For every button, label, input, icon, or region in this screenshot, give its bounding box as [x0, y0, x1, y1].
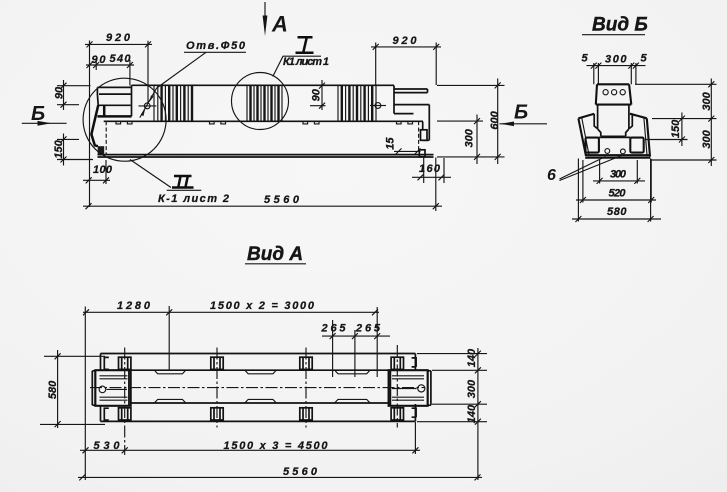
svg-text:150: 150: [670, 119, 682, 138]
svg-text:300: 300: [605, 53, 627, 65]
svg-text:520: 520: [609, 187, 627, 199]
svg-text:Вид Б: Вид Б: [592, 15, 648, 36]
svg-text:300: 300: [701, 91, 713, 110]
svg-text:Б: Б: [514, 102, 528, 124]
svg-text:300: 300: [466, 379, 478, 398]
svg-text:300: 300: [464, 128, 476, 147]
svg-text:5: 5: [641, 53, 648, 65]
svg-text:1500 х 2 = 3000: 1500 х 2 = 3000: [210, 300, 315, 312]
svg-text:К1 лист 1: К1 лист 1: [283, 56, 329, 68]
svg-text:540: 540: [110, 53, 132, 65]
svg-text:300: 300: [610, 168, 627, 180]
svg-text:265: 265: [321, 323, 347, 335]
svg-text:920: 920: [393, 35, 418, 47]
svg-text:580: 580: [607, 206, 627, 218]
svg-text:920: 920: [106, 32, 131, 44]
svg-text:600: 600: [489, 110, 501, 129]
svg-text:5: 5: [582, 53, 589, 65]
svg-text:1280: 1280: [117, 300, 151, 312]
svg-text:6: 6: [547, 167, 556, 184]
svg-text:140: 140: [466, 404, 478, 423]
svg-text:100: 100: [93, 164, 113, 176]
svg-text:К-1 лист 2: К-1 лист 2: [158, 193, 229, 205]
svg-text:Вид А: Вид А: [247, 244, 303, 265]
svg-text:140: 140: [466, 348, 478, 367]
svg-text:90: 90: [92, 54, 107, 66]
svg-text:300: 300: [701, 129, 713, 148]
svg-text:15: 15: [385, 137, 397, 150]
svg-text:90: 90: [311, 88, 323, 101]
svg-text:160: 160: [419, 163, 441, 175]
svg-text:А: А: [271, 12, 288, 37]
